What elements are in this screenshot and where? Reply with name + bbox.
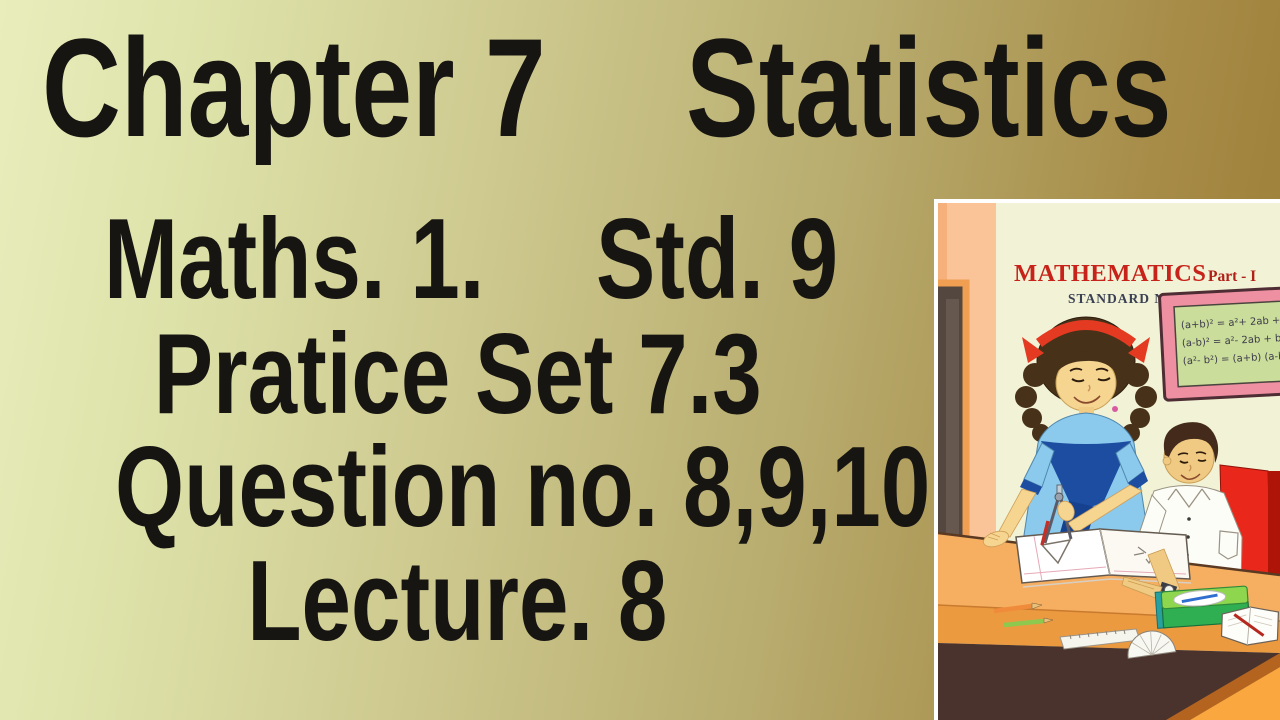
green-chalkboard: (a+b)² = a²+ 2ab + b² (a-b)² = a²- 2ab +… — [1159, 286, 1280, 400]
lecture-label: Lecture. 8 — [0, 545, 915, 659]
question-numbers-label: Question no. 8,9,10 — [0, 431, 915, 545]
textbook-cover-art: MATHEMATICS Part - I STANDARD NINE (a+b)… — [938, 203, 1280, 720]
chapter-title: Chapter 7 — [42, 18, 688, 158]
wall-board-icon — [938, 283, 966, 561]
textbook-cover-illustration: MATHEMATICS Part - I STANDARD NINE (a+b)… — [934, 199, 1280, 720]
chapter-title-text: Chapter 7 — [42, 18, 546, 158]
std-label: Std. 9 — [596, 203, 906, 317]
subject-title-text: Statistics — [686, 18, 1172, 158]
thumbnail-canvas: Chapter 7 Statistics Maths. 1. Std. 9 Pr… — [0, 0, 1280, 720]
practice-set-label: Pratice Set 7.3 — [0, 318, 915, 432]
maths-label: Maths. 1. — [104, 203, 592, 317]
cover-title: MATHEMATICS — [1014, 260, 1206, 287]
subject-title: Statistics — [686, 18, 1280, 158]
cover-part: Part - I — [1208, 268, 1256, 285]
